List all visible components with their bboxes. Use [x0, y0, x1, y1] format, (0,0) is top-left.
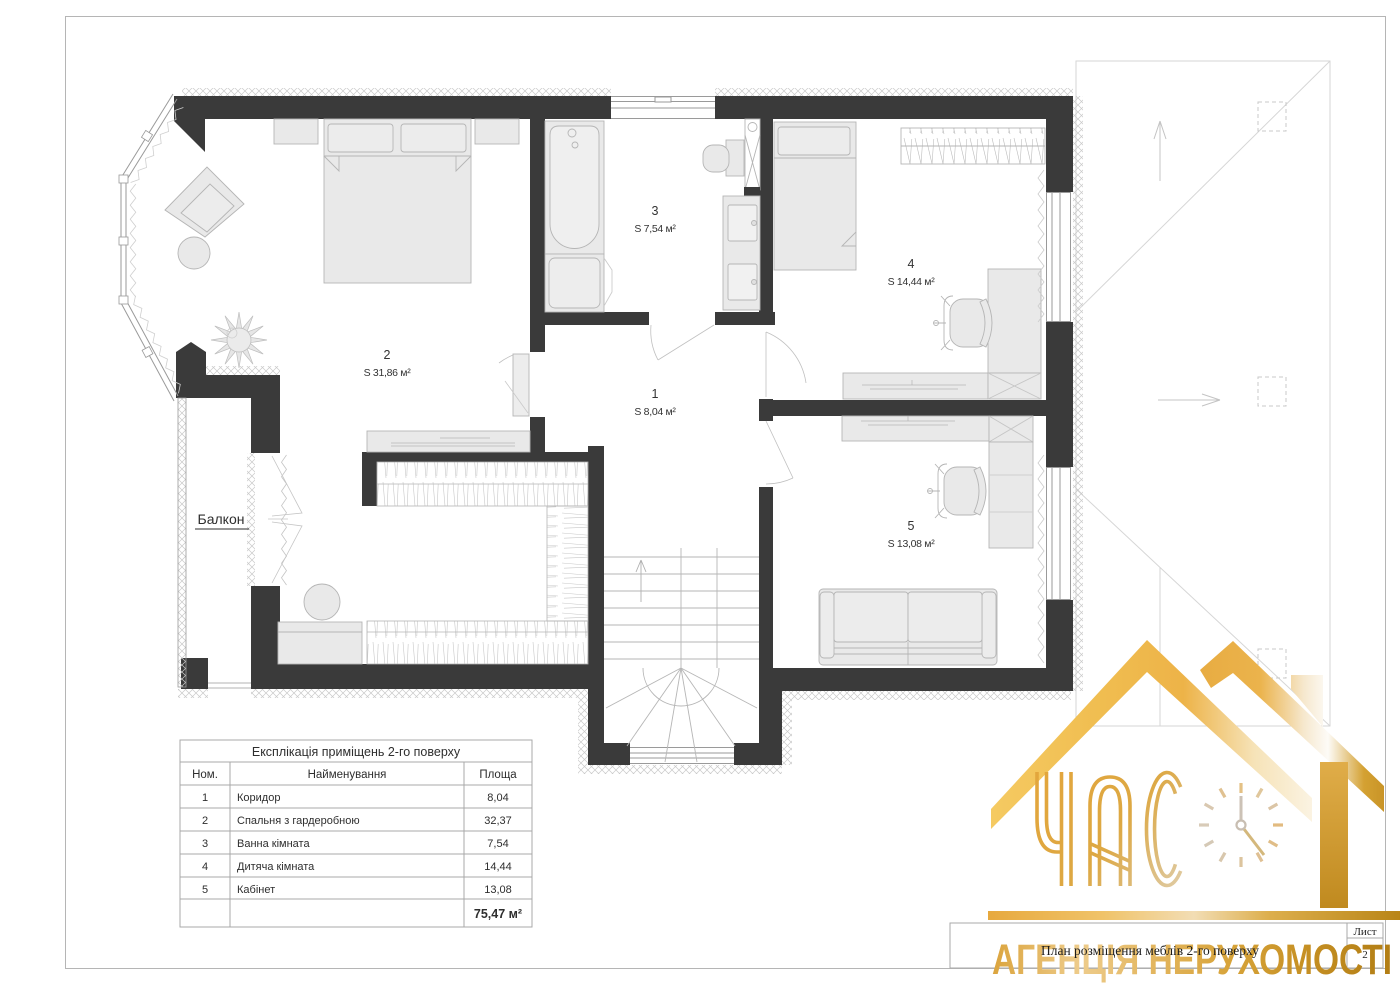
svg-text:Ванна кімната: Ванна кімната	[237, 838, 310, 850]
svg-text:1: 1	[652, 387, 659, 401]
svg-text:5: 5	[908, 519, 915, 533]
svg-text:5: 5	[202, 884, 208, 896]
svg-text:3: 3	[652, 204, 659, 218]
svg-text:S 13,08 м²: S 13,08 м²	[888, 538, 936, 550]
svg-text:План розміщення меблів 2-го по: План розміщення меблів 2-го поверху	[1041, 943, 1259, 958]
svg-text:Ном.: Ном.	[192, 769, 218, 781]
svg-text:2: 2	[202, 815, 208, 827]
svg-text:2: 2	[384, 348, 391, 362]
svg-text:4: 4	[202, 861, 208, 873]
svg-text:Дитяча кімната: Дитяча кімната	[237, 861, 315, 873]
svg-text:Найменування: Найменування	[308, 769, 387, 781]
svg-text:7,54: 7,54	[487, 838, 508, 850]
svg-text:14,44: 14,44	[484, 861, 512, 873]
svg-text:S 7,54 м²: S 7,54 м²	[634, 223, 676, 235]
svg-text:75,47 м²: 75,47 м²	[474, 907, 522, 921]
svg-text:13,08: 13,08	[484, 884, 512, 896]
svg-text:32,37: 32,37	[484, 815, 512, 827]
svg-text:4: 4	[908, 257, 915, 271]
svg-text:3: 3	[202, 838, 208, 850]
svg-text:Балкон: Балкон	[198, 511, 245, 527]
svg-text:Площа: Площа	[479, 769, 517, 781]
svg-text:8,04: 8,04	[487, 792, 508, 804]
svg-text:Спальня з гардеробною: Спальня з гардеробною	[237, 815, 360, 827]
svg-text:1: 1	[202, 792, 208, 804]
svg-text:S 14,44 м²: S 14,44 м²	[888, 276, 936, 288]
svg-text:S 31,86 м²: S 31,86 м²	[364, 367, 412, 379]
svg-text:Експлікація приміщень 2-го пов: Експлікація приміщень 2-го поверху	[252, 745, 461, 759]
svg-text:Кабінет: Кабінет	[237, 884, 275, 896]
svg-text:S 8,04 м²: S 8,04 м²	[634, 406, 676, 418]
svg-text:Коридор: Коридор	[237, 792, 280, 804]
